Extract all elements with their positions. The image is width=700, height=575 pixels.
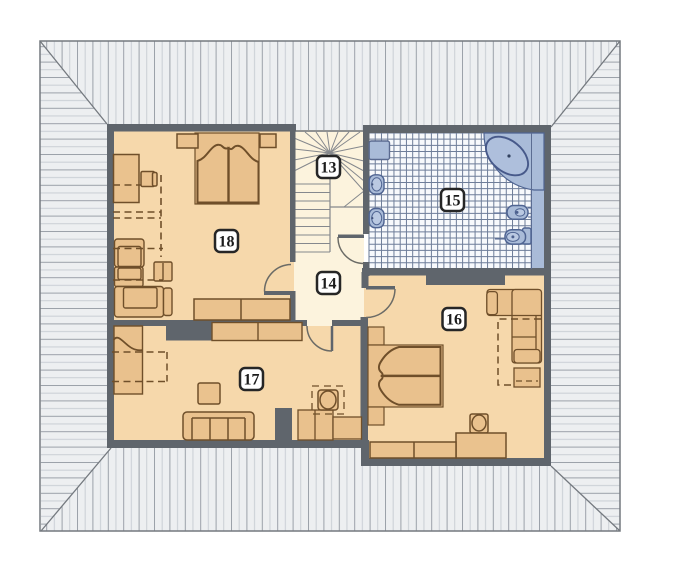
svg-text:13: 13 xyxy=(321,160,337,177)
svg-text:18: 18 xyxy=(219,234,235,251)
svg-text:14: 14 xyxy=(321,276,337,293)
svg-text:16: 16 xyxy=(446,312,462,329)
svg-text:15: 15 xyxy=(445,193,461,210)
svg-text:17: 17 xyxy=(244,372,260,389)
